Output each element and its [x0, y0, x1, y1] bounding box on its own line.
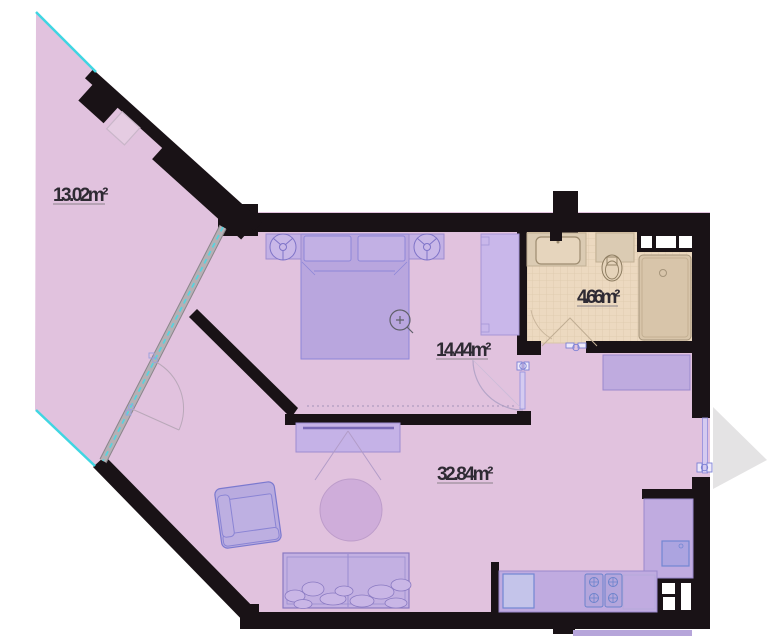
svg-text:32.84m²: 32.84m²: [437, 464, 493, 485]
svg-text:14.44m²: 14.44m²: [436, 340, 491, 361]
svg-text:4.66m²: 4.66m²: [577, 287, 620, 308]
svg-text:13.02m²: 13.02m²: [53, 185, 108, 206]
